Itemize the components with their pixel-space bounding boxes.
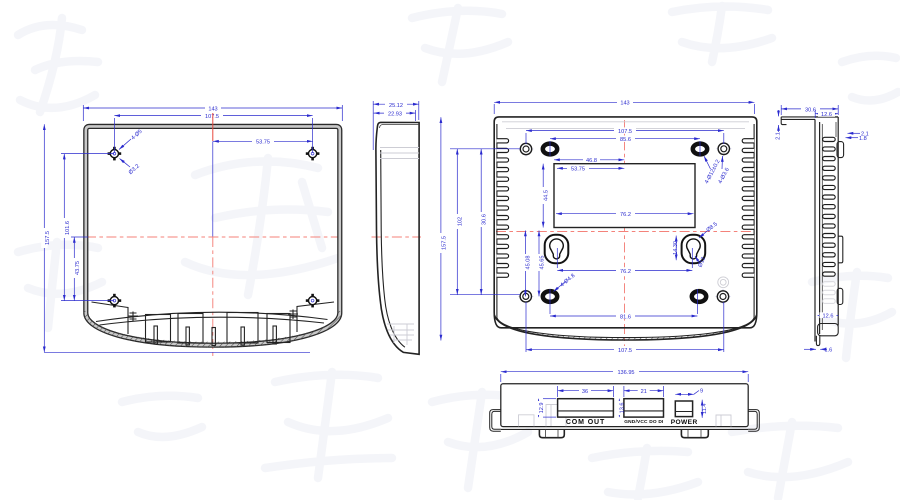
svg-text:2.1: 2.1 — [776, 132, 782, 140]
svg-text:21: 21 — [641, 389, 647, 395]
svg-text:GND/VCC DO DI: GND/VCC DO DI — [624, 419, 664, 425]
svg-text:45.08: 45.08 — [526, 256, 532, 270]
svg-text:107.5: 107.5 — [205, 114, 219, 120]
svg-text:30.6: 30.6 — [805, 107, 816, 113]
svg-text:46.8: 46.8 — [586, 158, 597, 164]
svg-text:107.5: 107.5 — [618, 348, 632, 354]
svg-text:12.6: 12.6 — [823, 313, 834, 319]
svg-text:1.8: 1.8 — [859, 136, 867, 142]
svg-text:22.93: 22.93 — [388, 112, 402, 118]
svg-text:4-Ø4.8: 4-Ø4.8 — [559, 273, 576, 289]
svg-text:85.6: 85.6 — [620, 137, 631, 143]
svg-text:11.4: 11.4 — [702, 403, 708, 413]
svg-text:53.75: 53.75 — [256, 140, 270, 146]
svg-text:1.6: 1.6 — [825, 348, 833, 354]
svg-text:45.65: 45.65 — [539, 256, 545, 270]
svg-text:157.5: 157.5 — [441, 236, 447, 250]
svg-text:143: 143 — [208, 106, 217, 112]
svg-text:76.2: 76.2 — [620, 269, 631, 275]
svg-text:12.9: 12.9 — [539, 402, 545, 413]
svg-text:14.30: 14.30 — [673, 241, 679, 255]
svg-text:44.5: 44.5 — [544, 190, 550, 201]
svg-text:Ø3.2: Ø3.2 — [128, 163, 141, 176]
svg-text:4-Ø5: 4-Ø5 — [130, 129, 143, 142]
svg-text:4-Ø3.6: 4-Ø3.6 — [717, 167, 730, 185]
svg-text:13.6: 13.6 — [620, 402, 626, 413]
svg-text:POWER: POWER — [671, 419, 698, 426]
svg-text:25.12: 25.12 — [389, 103, 403, 109]
svg-text:102: 102 — [458, 217, 464, 226]
svg-text:157.5: 157.5 — [45, 231, 51, 245]
svg-text:30.6: 30.6 — [482, 214, 488, 225]
svg-text:101.6: 101.6 — [65, 221, 71, 235]
svg-text:143: 143 — [620, 101, 629, 107]
svg-text:36: 36 — [582, 389, 588, 395]
svg-text:136.95: 136.95 — [617, 370, 634, 376]
svg-text:9: 9 — [700, 389, 703, 395]
svg-text:COM OUT: COM OUT — [566, 419, 605, 426]
svg-text:53.75: 53.75 — [571, 167, 585, 173]
svg-text:107.5: 107.5 — [618, 129, 632, 135]
svg-text:81.6: 81.6 — [620, 314, 631, 320]
svg-text:12.6: 12.6 — [821, 112, 832, 118]
svg-text:43.75: 43.75 — [75, 261, 81, 275]
svg-text:76.2: 76.2 — [620, 212, 631, 218]
